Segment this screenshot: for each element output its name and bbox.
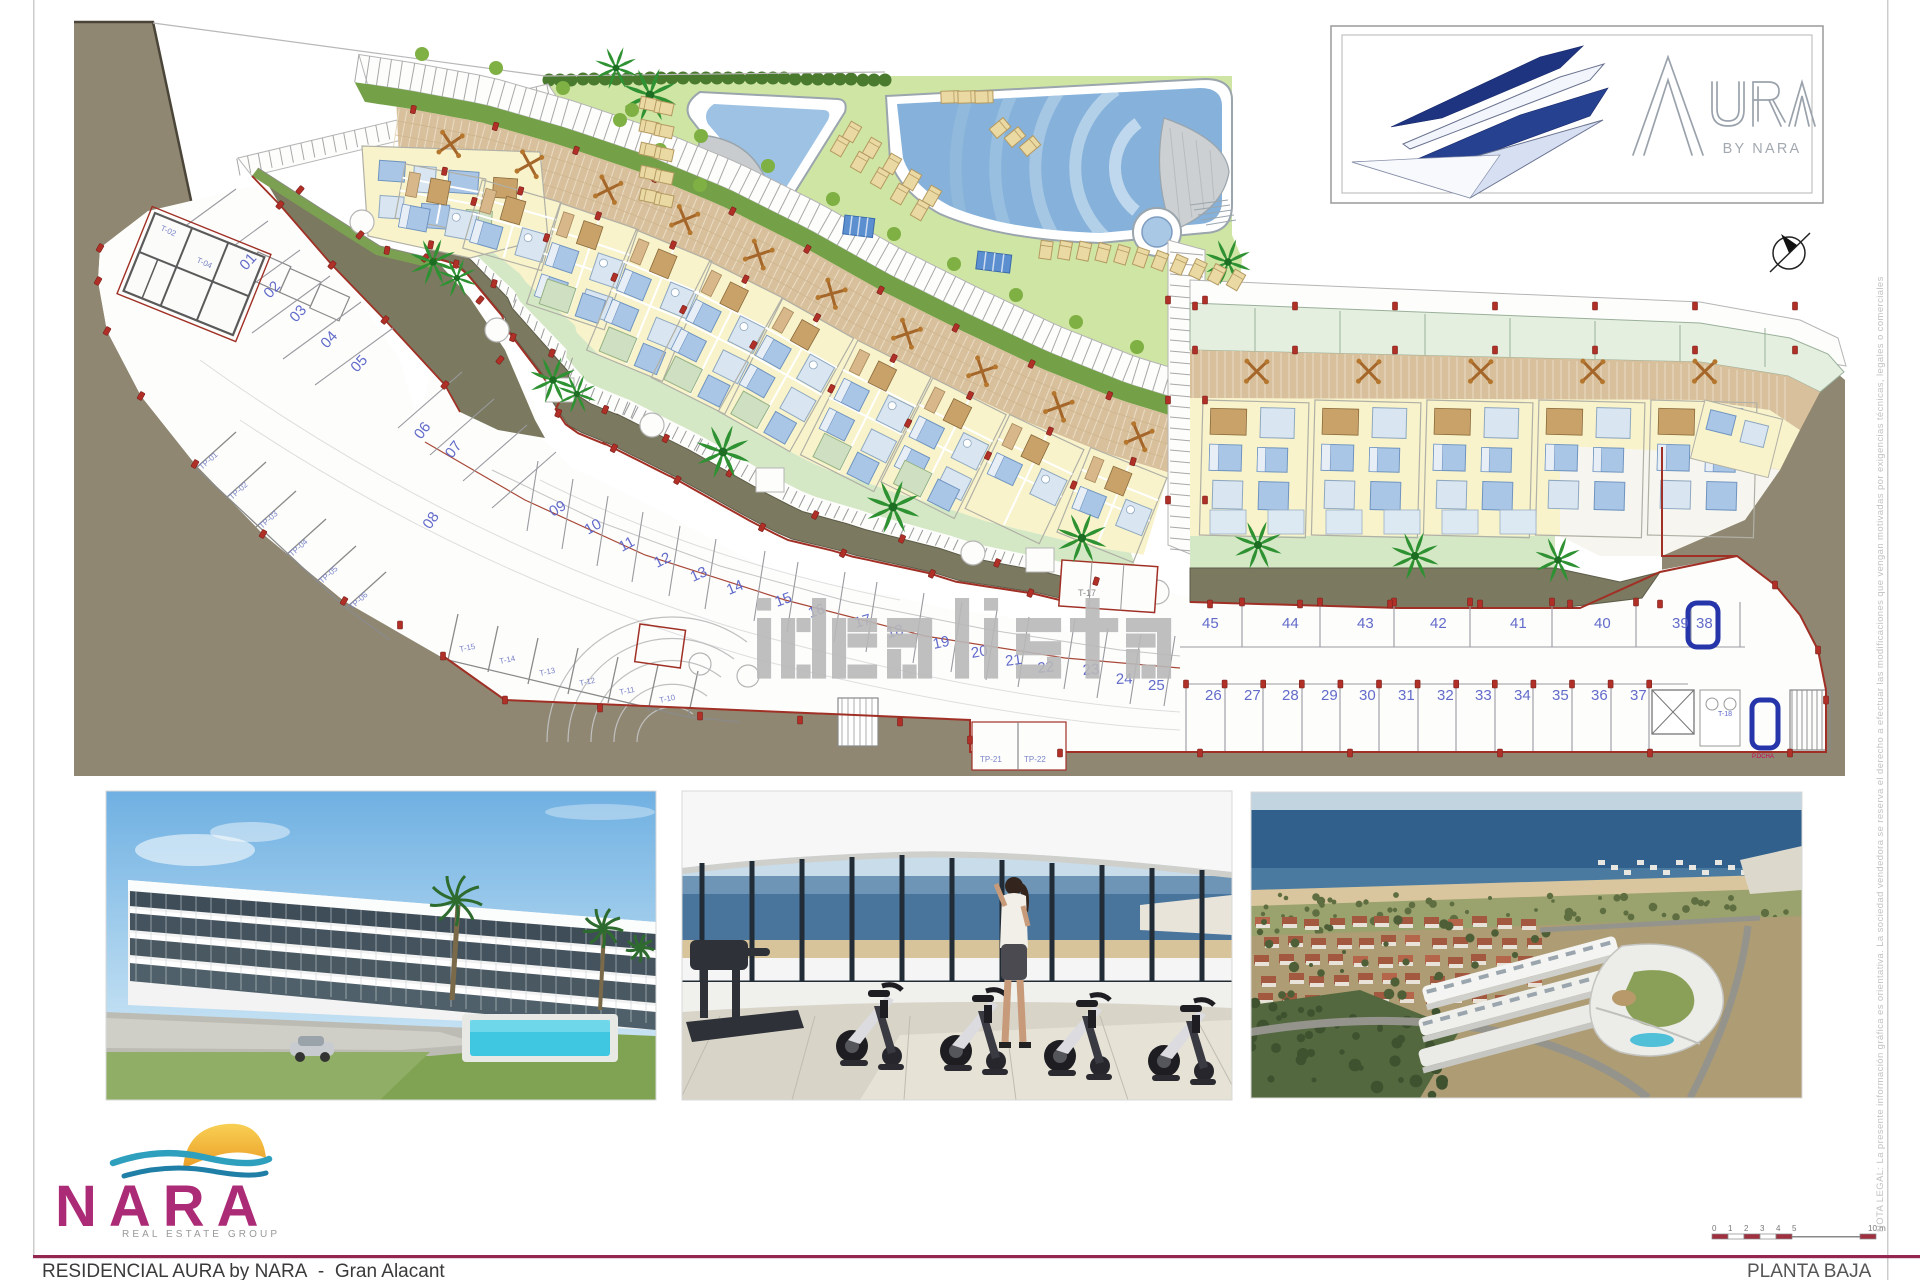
- svg-text:BY NARA: BY NARA: [1723, 141, 1802, 157]
- svg-text:27: 27: [1244, 687, 1261, 704]
- svg-text:NOTA LEGAL: La presente inform: NOTA LEGAL: La presente información gráf…: [1875, 276, 1886, 1232]
- svg-text:3: 3: [1760, 1224, 1765, 1233]
- svg-text:29: 29: [1321, 687, 1338, 704]
- svg-text:TP-22: TP-22: [1024, 755, 1046, 764]
- svg-text:4: 4: [1776, 1224, 1781, 1233]
- svg-text:38: 38: [1696, 615, 1713, 632]
- svg-text:31: 31: [1398, 687, 1415, 704]
- svg-text:34: 34: [1514, 687, 1531, 704]
- svg-text:43: 43: [1357, 615, 1374, 632]
- svg-text:26: 26: [1205, 687, 1222, 704]
- svg-text:32: 32: [1437, 687, 1454, 704]
- svg-text:T-17: T-17: [1078, 588, 1096, 598]
- svg-text:TP-21: TP-21: [980, 755, 1002, 764]
- svg-text:41: 41: [1510, 615, 1527, 632]
- svg-text:5: 5: [1792, 1224, 1797, 1233]
- svg-text:0: 0: [1712, 1224, 1717, 1233]
- svg-text:40: 40: [1594, 615, 1611, 632]
- svg-text:42: 42: [1430, 615, 1447, 632]
- svg-text:39: 39: [1672, 615, 1689, 632]
- svg-text:35: 35: [1552, 687, 1569, 704]
- svg-text:36: 36: [1591, 687, 1608, 704]
- svg-text:PLANTA BAJA: PLANTA BAJA: [1747, 1261, 1872, 1280]
- svg-text:1: 1: [1728, 1224, 1733, 1233]
- svg-text:33: 33: [1475, 687, 1492, 704]
- svg-text:30: 30: [1359, 687, 1376, 704]
- svg-text:P.DCHA: P.DCHA: [1752, 754, 1774, 760]
- svg-text:REAL ESTATE GROUP: REAL ESTATE GROUP: [122, 1229, 280, 1240]
- svg-text:45: 45: [1202, 615, 1219, 632]
- svg-text:T-18: T-18: [1718, 711, 1732, 718]
- svg-text:RESIDENCIAL AURA by NARA - G: RESIDENCIAL AURA by NARA - Gran Alacant: [42, 1261, 445, 1280]
- svg-text:37: 37: [1630, 687, 1647, 704]
- svg-text:28: 28: [1282, 687, 1299, 704]
- svg-text:2: 2: [1744, 1224, 1749, 1233]
- svg-text:44: 44: [1282, 615, 1299, 632]
- svg-text:25: 25: [1148, 677, 1165, 694]
- svg-text:19: 19: [931, 633, 951, 653]
